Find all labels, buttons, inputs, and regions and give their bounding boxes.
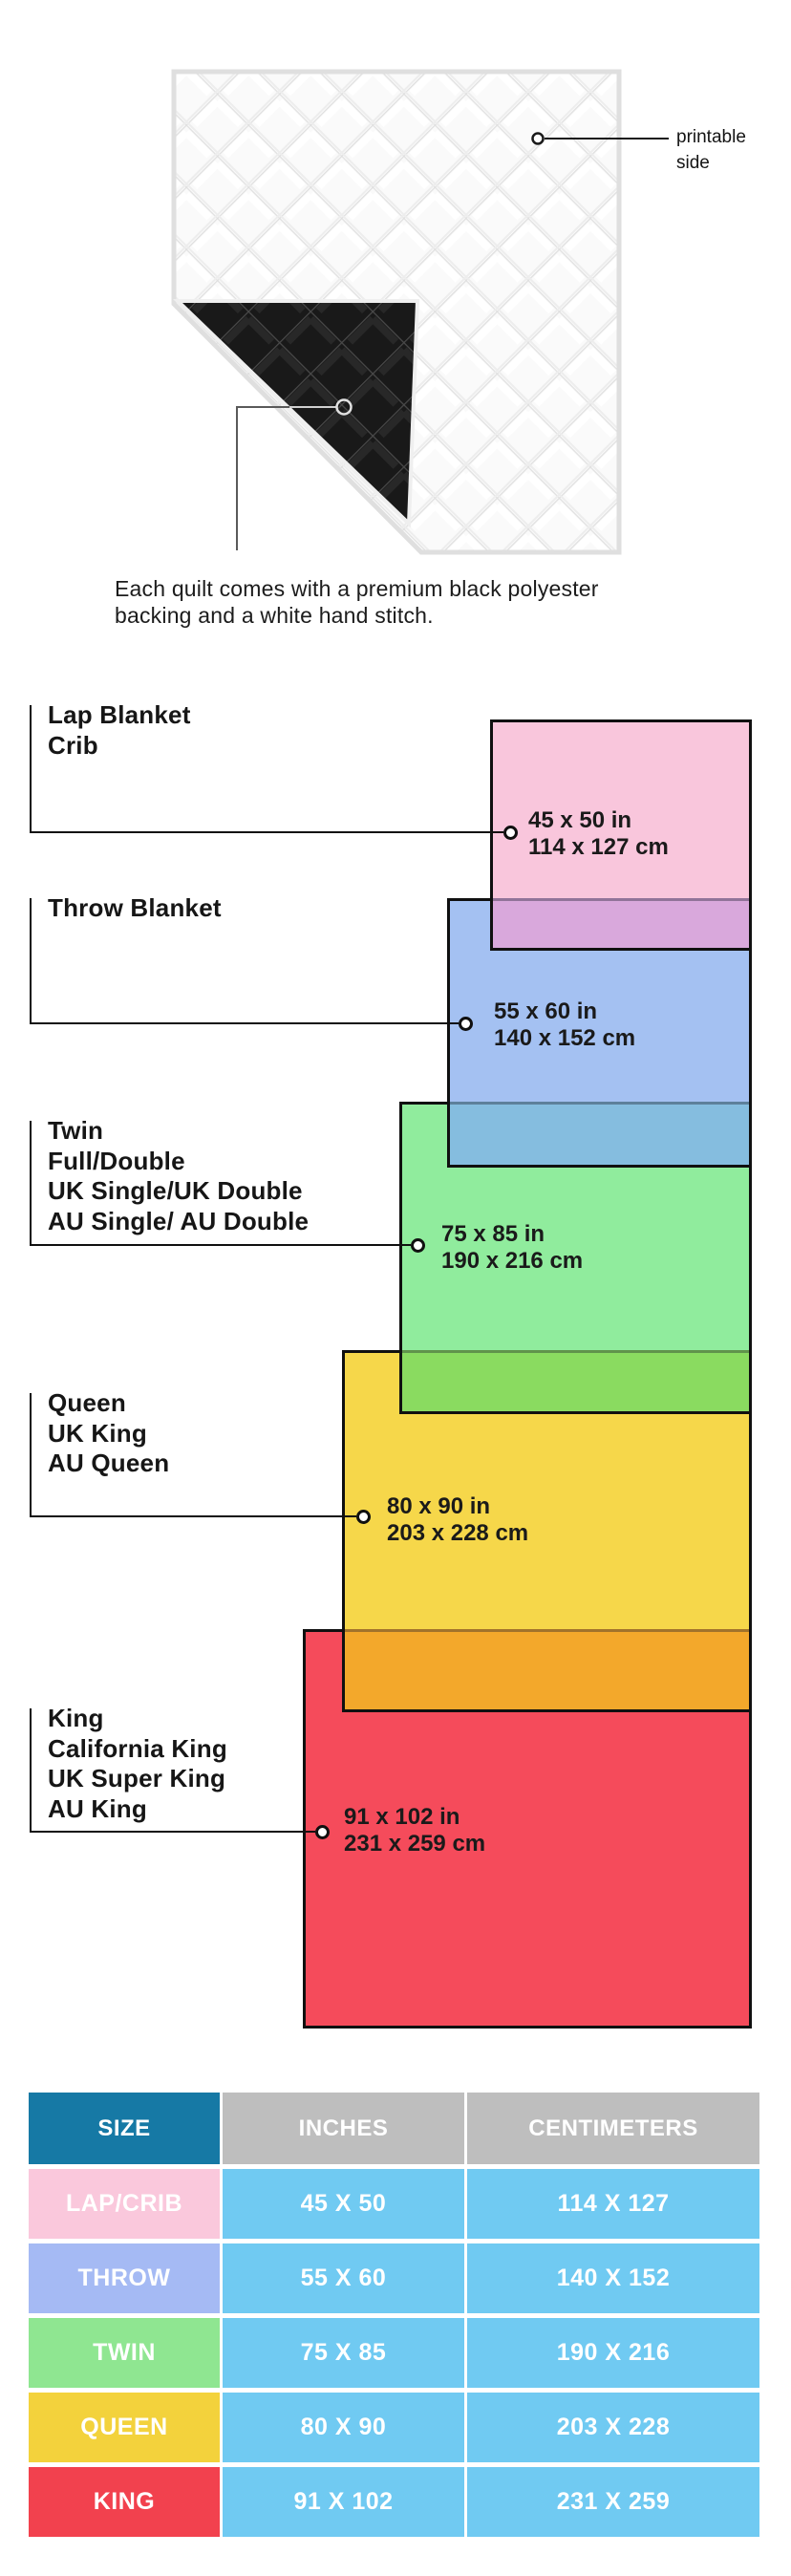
callout-vline-throw xyxy=(30,898,32,1024)
callout-marker-queen xyxy=(356,1510,371,1524)
size-dimensions-king: 91 x 102 in 231 x 259 cm xyxy=(344,1804,485,1857)
table-header-size: SIZE xyxy=(29,2093,220,2164)
overlap-band-twin xyxy=(402,1350,749,1411)
callout-vline-king xyxy=(30,1708,32,1833)
size-dimensions-throw: 55 x 60 in 140 x 152 cm xyxy=(494,998,635,1052)
size-label-lap-crib: Lap Blanket Crib xyxy=(48,700,191,761)
callout-vline-twin xyxy=(30,1121,32,1246)
callout-marker-lap-crib xyxy=(503,826,518,840)
callout-hline-throw xyxy=(31,1022,459,1024)
table-row-centimeters: 140 X 152 xyxy=(467,2243,759,2313)
callout-hline-twin xyxy=(31,1244,411,1246)
table-row-label: THROW xyxy=(29,2243,220,2313)
overlap-band-queen xyxy=(345,1629,749,1709)
callout-marker-throw xyxy=(459,1017,473,1031)
table-header-centimeters: CENTIMETERS xyxy=(467,2093,759,2164)
table-header-inches: INCHES xyxy=(223,2093,464,2164)
table-row-label: LAP/CRIB xyxy=(29,2169,220,2239)
table-row-label: QUEEN xyxy=(29,2393,220,2462)
size-table: SIZEINCHESCENTIMETERSLAP/CRIB45 X 50114 … xyxy=(29,2093,759,2537)
size-label-throw: Throw Blanket xyxy=(48,893,222,924)
overlap-band-throw xyxy=(450,1102,749,1165)
callout-hline-king xyxy=(31,1831,315,1833)
table-row-inches: 75 X 85 xyxy=(223,2318,464,2388)
callout-hline-lap-crib xyxy=(31,831,503,833)
quilt-size-infographic: printable side Each quilt comes with a p… xyxy=(0,0,791,2576)
callout-marker-king xyxy=(315,1825,330,1839)
table-row-inches: 55 X 60 xyxy=(223,2243,464,2313)
size-label-twin: Twin Full/Double UK Single/UK Double AU … xyxy=(48,1116,309,1236)
table-row-centimeters: 231 X 259 xyxy=(467,2467,759,2537)
table-row-inches: 45 X 50 xyxy=(223,2169,464,2239)
size-dimensions-lap-crib: 45 x 50 in 114 x 127 cm xyxy=(528,807,669,861)
size-dimensions-queen: 80 x 90 in 203 x 228 cm xyxy=(387,1493,528,1547)
callout-vline-queen xyxy=(30,1393,32,1517)
table-row-label: KING xyxy=(29,2467,220,2537)
table-row-centimeters: 190 X 216 xyxy=(467,2318,759,2388)
overlap-band-lap-crib xyxy=(493,898,749,948)
callout-marker-twin xyxy=(411,1238,425,1253)
table-row-inches: 80 X 90 xyxy=(223,2393,464,2462)
callout-hline-queen xyxy=(31,1515,356,1517)
table-row-centimeters: 114 X 127 xyxy=(467,2169,759,2239)
size-dimensions-twin: 75 x 85 in 190 x 216 cm xyxy=(441,1221,583,1275)
table-row-inches: 91 X 102 xyxy=(223,2467,464,2537)
size-diagram: Lap Blanket Crib45 x 50 in 114 x 127 cmT… xyxy=(0,0,791,2064)
size-label-queen: Queen UK King AU Queen xyxy=(48,1388,169,1479)
table-row-label: TWIN xyxy=(29,2318,220,2388)
size-label-king: King California King UK Super King AU Ki… xyxy=(48,1704,227,1824)
callout-vline-lap-crib xyxy=(30,705,32,833)
table-row-centimeters: 203 X 228 xyxy=(467,2393,759,2462)
